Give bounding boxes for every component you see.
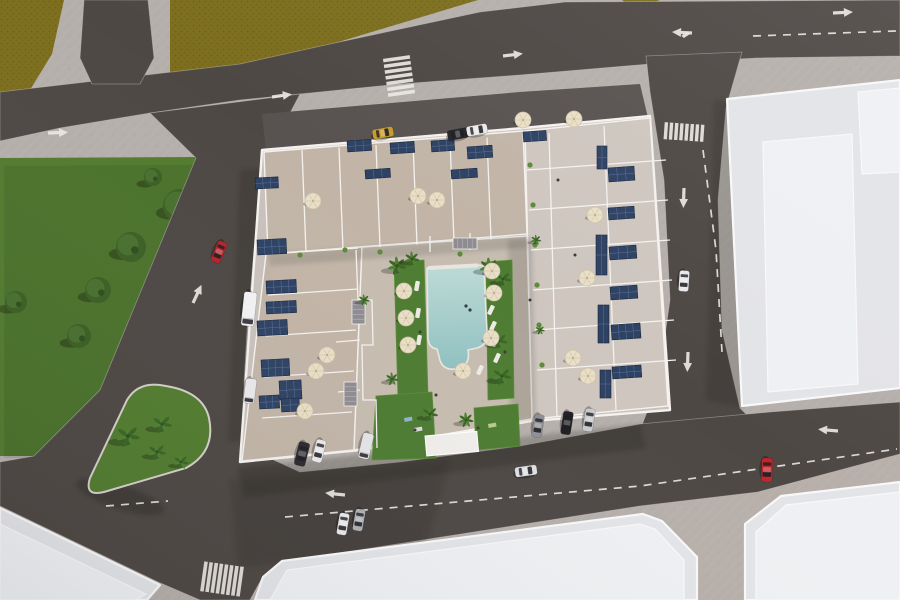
terrace-plant: [530, 202, 535, 207]
solar-panel-array: [598, 305, 609, 343]
terrace-plant: [377, 249, 382, 254]
solar-panel-array: [597, 146, 607, 169]
building-roof-upper: [763, 134, 858, 392]
residential-complex: [240, 111, 676, 462]
solar-panel-array: [600, 370, 611, 398]
terrace-plant: [297, 252, 302, 257]
solar-panel-array: [257, 319, 288, 336]
building-roof-upper: [858, 88, 900, 174]
solar-panel-array: [608, 206, 635, 220]
solar-panel-array: [467, 145, 493, 159]
solar-panel-array: [261, 359, 290, 377]
solar-panel-array: [596, 235, 607, 275]
solar-panel-array: [612, 365, 642, 379]
solar-panel-array: [259, 395, 280, 409]
terrace-plant: [539, 362, 544, 367]
person: [529, 299, 532, 302]
swimmer: [468, 308, 471, 311]
solar-panel-array: [451, 168, 478, 179]
terrace-plant: [457, 251, 462, 256]
terrace-plant: [527, 162, 532, 167]
aerial-3d-render: [0, 0, 900, 600]
person: [574, 254, 577, 257]
solar-panel-array: [266, 279, 297, 294]
solar-panel-array: [390, 141, 415, 154]
courtyard-lawn: [394, 260, 428, 398]
east-building: [727, 80, 900, 406]
solar-panel-array: [611, 323, 641, 340]
person: [435, 394, 438, 397]
solar-panel-array: [347, 139, 372, 152]
person: [504, 351, 507, 354]
person: [419, 331, 422, 334]
pool-kiosk: [425, 431, 479, 455]
aerial-render-frame: [0, 0, 900, 600]
road-surface: [80, 0, 154, 84]
stairwell: [344, 382, 357, 406]
terrace-plant: [534, 282, 539, 287]
person: [557, 179, 560, 182]
terrace-plant: [342, 247, 347, 252]
solar-panel-array: [255, 177, 279, 189]
solar-panel-array: [279, 380, 302, 400]
stairwell: [453, 238, 477, 249]
courtyard-lawn: [474, 404, 520, 450]
person: [414, 429, 417, 432]
swimmer: [464, 304, 467, 307]
solar-panel-array: [365, 168, 391, 179]
solar-panel-array: [266, 300, 297, 314]
solar-panel-array: [608, 166, 635, 182]
solar-panel-array: [609, 245, 637, 260]
person: [477, 427, 480, 430]
solar-panel-array: [257, 238, 287, 254]
solar-panel-array: [523, 130, 547, 142]
solar-panel-array: [610, 285, 638, 300]
